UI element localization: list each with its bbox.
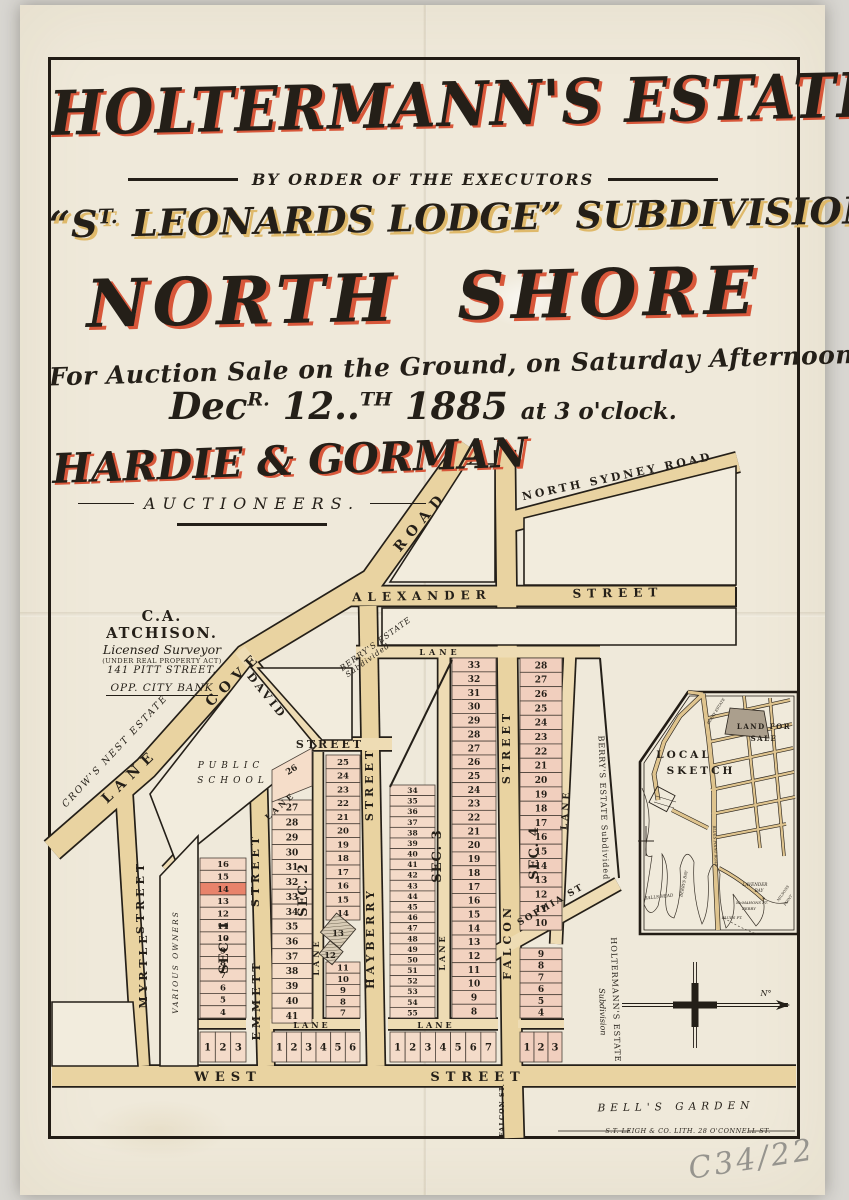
lot-number: 12	[324, 951, 336, 961]
map-label: LANE	[560, 789, 573, 830]
map-label: LAVENDER	[742, 882, 768, 887]
lot-number: 6	[470, 1043, 477, 1054]
lot-number: 45	[407, 902, 417, 911]
map-label: STREET	[500, 710, 513, 784]
lot-number: 22	[337, 799, 349, 809]
lot-number: 28	[286, 819, 299, 829]
lot-number: 52	[407, 977, 417, 986]
region-word-1: NORTH	[85, 259, 400, 344]
auctioneer-block: HARDIE & GORMAN AUCTIONEERS.	[52, 438, 452, 526]
map-label: FERRY	[741, 906, 756, 911]
lot-number: 47	[407, 924, 417, 933]
lot-number: 5	[455, 1043, 462, 1054]
subdiv-pre: “S	[49, 202, 99, 247]
map-label: STREET	[249, 833, 262, 907]
surveyor-name: C.A. ATCHISON.	[86, 608, 238, 642]
lot-number: 38	[407, 828, 417, 837]
lot-number: 9	[340, 986, 346, 996]
auctioneer-role: AUCTIONEERS.	[52, 494, 452, 513]
poster-scan: 1615141312111098765427282930313233343536…	[0, 0, 849, 1200]
lot-number: 17	[337, 868, 349, 878]
lot-number: 35	[407, 797, 417, 806]
date-line: DecR. 12..TH 1885 at 3 o'clock.	[49, 384, 797, 428]
subdiv-sup: T.	[98, 204, 119, 228]
region-title: NORTHSHORE	[48, 250, 797, 344]
map-label: WEST	[193, 1070, 262, 1085]
lot-number: 1	[524, 1043, 531, 1054]
lot-number: 2	[291, 1043, 298, 1054]
lot-number: 19	[468, 855, 481, 865]
surveyor-line1: Licensed Surveyor	[86, 642, 238, 657]
lot-number: 27	[535, 676, 548, 686]
lot-number: 10	[468, 980, 481, 990]
lot-number: 23	[337, 785, 349, 795]
lot-number: 18	[468, 869, 481, 879]
map-label: SCHOOL	[197, 776, 269, 786]
map-label: McMAHONS PT.	[735, 900, 768, 905]
lot-number: 3	[235, 1043, 242, 1054]
surveyor-line4: OPP. CITY BANK	[106, 682, 217, 696]
north-arrow	[622, 962, 790, 1048]
lot-number: 7	[340, 1008, 346, 1018]
lot-number: 29	[286, 833, 299, 843]
land-block	[382, 608, 736, 645]
lot-number: 13	[332, 929, 344, 939]
lot-number: 39	[286, 982, 299, 992]
lot-number: 9	[538, 950, 544, 960]
lot-number: 16	[468, 897, 481, 907]
lot-number: 7	[538, 973, 544, 983]
lot-number: 25	[468, 772, 481, 782]
lot-number: 36	[407, 807, 417, 816]
rule-left	[128, 178, 238, 181]
map-label: LANE	[419, 647, 460, 657]
lot-number: 16	[337, 882, 349, 892]
lot-number: 48	[407, 934, 417, 943]
map-label: SEC. 3	[430, 829, 445, 883]
map-label: SALE	[751, 734, 778, 743]
map-label: EMMETT	[250, 959, 263, 1040]
lot-number: 49	[407, 945, 417, 954]
lot-number: 2	[220, 1043, 227, 1054]
map-label: PUBLIC	[197, 761, 265, 771]
lot-number: 50	[407, 955, 417, 964]
lot-number: 12	[468, 952, 481, 962]
lot-number: 13	[217, 897, 229, 907]
lot-number: 24	[468, 786, 481, 796]
lot-number: 20	[535, 776, 548, 786]
lot-number: 30	[286, 848, 299, 858]
lot-number: 20	[468, 841, 481, 851]
lot-number: 46	[407, 913, 417, 922]
lot-number: 2	[538, 1043, 545, 1054]
lot-number: 30	[468, 703, 481, 713]
map-label: LANE	[293, 1020, 330, 1030]
lot-number: 22	[535, 747, 548, 757]
lot-number: 40	[286, 997, 299, 1007]
surveyor-block: C.A. ATCHISON. Licensed Surveyor (UNDER …	[86, 608, 238, 696]
lot-number: 51	[407, 966, 417, 975]
lot-number: 14	[468, 924, 481, 934]
flourish-right	[370, 503, 426, 505]
lot-number: 8	[538, 962, 544, 972]
date-month-sup: R.	[247, 389, 269, 411]
lot-number: 4	[320, 1043, 327, 1054]
lot-number: 8	[471, 1007, 477, 1017]
map-label: BAY	[754, 888, 765, 893]
map-label: FALCON	[501, 904, 514, 980]
lot-number: 6	[349, 1043, 356, 1054]
date-day: 12..	[283, 384, 360, 428]
order-line: BY ORDER OF THE EXECUTORS	[49, 170, 797, 189]
lot-number: 5	[220, 996, 226, 1006]
lot-number: 4	[220, 1008, 226, 1018]
lot-number: 1	[204, 1043, 211, 1054]
lot-number: 24	[337, 772, 349, 782]
lot-number: 4	[538, 1008, 544, 1018]
map-label: ALEXANDER	[351, 588, 492, 604]
lot-number: 15	[217, 873, 229, 883]
date-year: 1885	[405, 384, 508, 428]
lot-number: 33	[468, 661, 481, 671]
surveyor-line3: 141 PITT STREET.	[86, 665, 238, 676]
surveyor-line2: (UNDER REAL PROPERTY ACT)	[86, 657, 238, 665]
lot-number: 8	[340, 997, 346, 1007]
auctioneer-underline	[177, 523, 327, 526]
lot-number: 18	[337, 854, 349, 864]
map-label: N°	[760, 989, 772, 998]
lot-number: 19	[337, 840, 349, 850]
lot-number: 15	[337, 895, 349, 905]
lot-number: 28	[535, 661, 548, 671]
map-label: BELL'S GARDEN	[596, 1100, 754, 1115]
map-label: MYRTLE	[137, 931, 150, 1008]
lot-number: 42	[407, 871, 417, 880]
lot-number: 17	[468, 883, 481, 893]
date-day-sup: TH	[360, 389, 392, 411]
lot-number: 9	[471, 994, 477, 1004]
lot-number: 5	[335, 1043, 342, 1054]
date-month: Dec	[169, 384, 247, 428]
map-label: STREET	[134, 860, 147, 934]
north-arrow-head	[776, 1000, 790, 1010]
map-label: LANE	[437, 933, 447, 970]
lot-number: 13	[468, 938, 481, 948]
lot-number: 38	[286, 967, 299, 977]
lot-number: 39	[407, 839, 417, 848]
lot-number: 28	[468, 730, 481, 740]
lot-number: 54	[407, 998, 417, 1007]
lot-number: 1	[276, 1043, 283, 1054]
road	[368, 606, 376, 1066]
lot-number: 6	[220, 983, 226, 993]
lot-number: 20	[337, 827, 349, 837]
lot-number: 44	[407, 892, 417, 901]
map-label: LANE	[311, 938, 321, 975]
lot-number: 19	[535, 790, 548, 800]
lot-number: 21	[535, 762, 548, 772]
land-block	[52, 1002, 138, 1066]
lot-number: 23	[468, 800, 481, 810]
lot-number: 3	[424, 1043, 431, 1054]
lot-number: 35	[286, 923, 299, 933]
map-label: SEC. 4	[527, 826, 542, 880]
lot-number: 15	[468, 910, 481, 920]
map-label: VARIOUS OWNERS	[171, 910, 180, 1014]
lot-number: 24	[535, 719, 548, 729]
lot-number: 36	[286, 938, 299, 948]
map-label: SKETCH	[667, 765, 736, 777]
lot-number: 11	[468, 966, 481, 976]
lot-number: 43	[407, 881, 417, 890]
sketch-road	[688, 692, 703, 694]
road	[505, 450, 514, 1138]
lot-number: 32	[468, 675, 481, 685]
lot-number: 10	[535, 919, 548, 929]
rule-right	[608, 178, 718, 181]
map-label: SEC. 1	[217, 920, 232, 974]
lot-number: 3	[552, 1043, 559, 1054]
map-label: STREET	[572, 585, 663, 601]
auctioneer-name: HARDIE & GORMAN	[51, 431, 452, 493]
lot-number: 12	[535, 891, 548, 901]
north-arrow-cross	[692, 983, 699, 1027]
map-label: HAYBERRY	[364, 887, 377, 989]
map-label: FALCON ST.	[498, 1083, 506, 1137]
map-label: STREET	[430, 1070, 525, 1085]
lot-number: 4	[440, 1043, 447, 1054]
lot-number: 3	[305, 1043, 312, 1054]
lot-number: 25	[337, 758, 349, 768]
lot-number: 18	[535, 805, 548, 815]
lot-number: 31	[468, 689, 481, 699]
map-label: STREET	[296, 738, 364, 751]
lot-number: 5	[538, 997, 544, 1007]
lot-number: 11	[337, 964, 349, 974]
lot-number: 26	[468, 758, 481, 768]
lot-number: 23	[535, 733, 548, 743]
lot-number: 12	[217, 909, 229, 919]
lot-number: 10	[337, 975, 349, 985]
lot-number: 16	[217, 860, 229, 870]
lot-number: 41	[407, 860, 417, 869]
lot-number: 2	[409, 1043, 416, 1054]
lot-number: 22	[468, 814, 481, 824]
lot-number: 55	[407, 1008, 417, 1017]
lot-number: 6	[538, 985, 544, 995]
map-label: BLUES PT.	[721, 915, 743, 920]
lot-number: 1	[394, 1043, 401, 1054]
map-label: S.T. LEIGH & CO. LITH. 28 O'CONNELL ST.	[605, 1127, 770, 1135]
date-time: at 3 o'clock.	[521, 398, 677, 425]
lot-number: 37	[286, 952, 299, 962]
map-label: LOCAL	[656, 749, 711, 761]
map-label: LAND FOR	[737, 722, 791, 731]
flourish-left	[78, 503, 134, 505]
map-label: SEC. 2	[296, 863, 311, 917]
map-label: HOLTERMANN'S ESTATE	[609, 937, 622, 1063]
map-label: LANE	[417, 1020, 454, 1030]
lot-number: 34	[407, 786, 417, 795]
lot-number: 25	[535, 704, 548, 714]
lot-number: 40	[407, 850, 417, 859]
map-label: Subdivision	[597, 988, 608, 1035]
lot-number: 26	[535, 690, 548, 700]
lot-number: 37	[407, 818, 417, 827]
lot-number: 14	[217, 885, 229, 895]
auctioneer-role-text: AUCTIONEERS.	[144, 494, 360, 513]
word-gap	[400, 319, 458, 320]
lot-number: 27	[468, 744, 481, 754]
order-line-text: BY ORDER OF THE EXECUTORS	[252, 170, 594, 189]
lot-number: 21	[337, 813, 349, 823]
region-word-2: SHORE	[456, 251, 760, 335]
lot-number: 53	[407, 987, 417, 996]
map-label: STREET	[363, 747, 376, 821]
lot-number: 29	[468, 717, 481, 727]
lot-number: 21	[468, 827, 481, 837]
lot-number: 7	[485, 1043, 492, 1054]
